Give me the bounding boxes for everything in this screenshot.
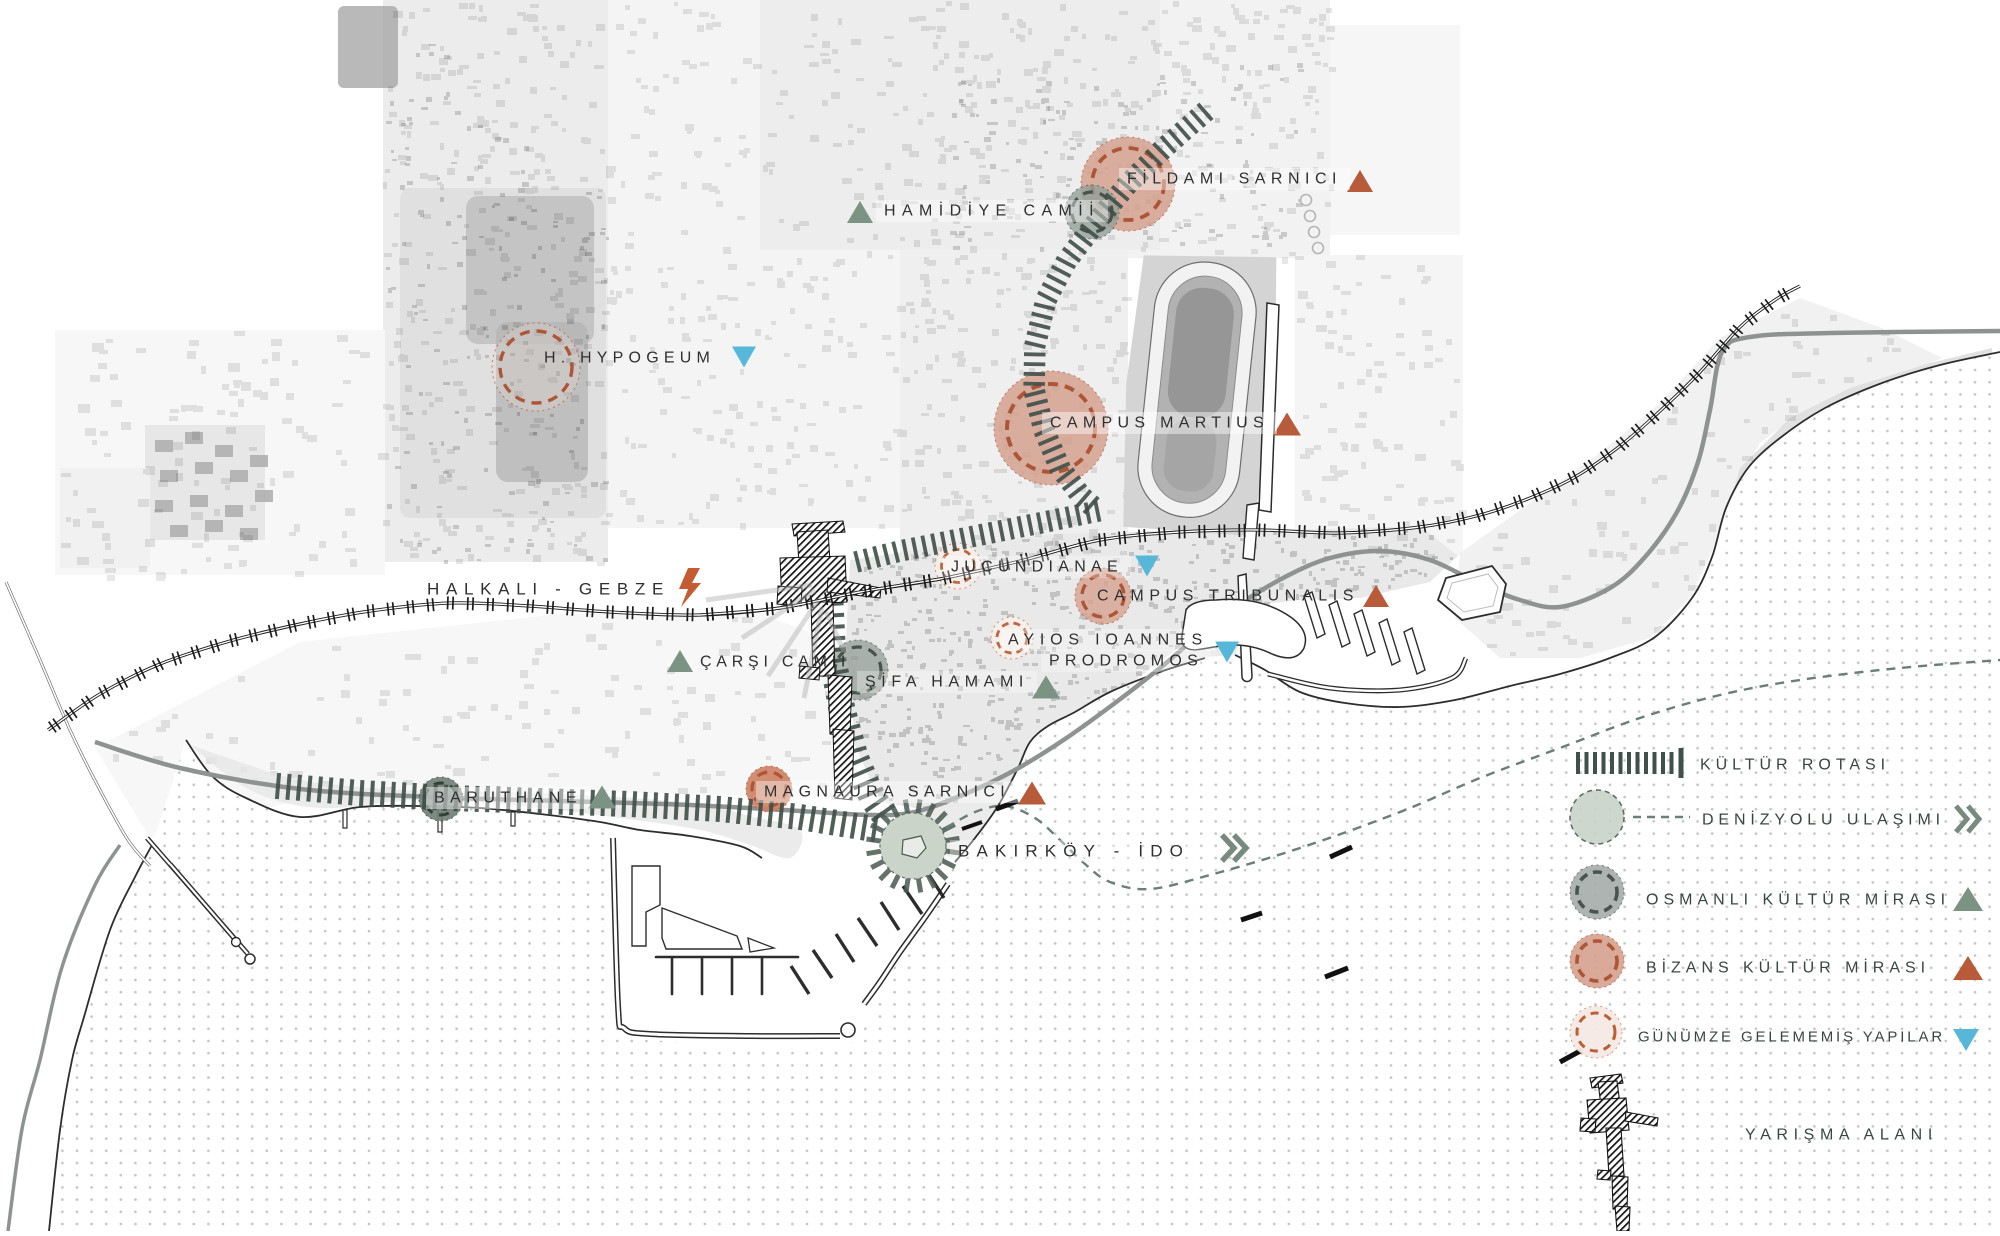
svg-text:JUCUNDIANAE: JUCUNDIANAE <box>951 559 1123 576</box>
svg-text:HAMİDİYE CAMİİ: HAMİDİYE CAMİİ <box>884 201 1100 220</box>
svg-text:OSMANLI KÜLTÜR MİRASI: OSMANLI KÜLTÜR MİRASI <box>1646 890 1950 909</box>
svg-text:GÜNÜMZE GELEMEMİŞ YAPILAR: GÜNÜMZE GELEMEMİŞ YAPILAR <box>1638 1028 1945 1046</box>
svg-text:FİLDAMI SARNICI: FİLDAMI SARNICI <box>1127 169 1342 188</box>
svg-text:BAKIRKÖY - İDO: BAKIRKÖY - İDO <box>958 842 1190 861</box>
svg-text:ŞİFA HAMAMI: ŞİFA HAMAMI <box>865 672 1029 691</box>
svg-text:AYIOS IOANNES: AYIOS IOANNES <box>1008 632 1208 649</box>
svg-text:PRODROMOS: PRODROMOS <box>1049 653 1203 670</box>
svg-text:KÜLTÜR ROTASI: KÜLTÜR ROTASI <box>1700 756 1890 774</box>
svg-text:HALKALI - GEBZE: HALKALI - GEBZE <box>427 580 670 599</box>
svg-text:BARUTHANE: BARUTHANE <box>434 790 582 807</box>
svg-text:ÇARŞI CAMİİ: ÇARŞI CAMİİ <box>700 652 850 671</box>
svg-text:BİZANS KÜLTÜR MİRASI: BİZANS KÜLTÜR MİRASI <box>1646 958 1930 977</box>
svg-text:CAMPUS TRIBUNALIS: CAMPUS TRIBUNALIS <box>1097 588 1359 605</box>
svg-text:MAGNAURA SARNICI: MAGNAURA SARNICI <box>764 784 1010 801</box>
svg-text:DENİZYOLU ULAŞIMI: DENİZYOLU ULAŞIMI <box>1702 810 1945 829</box>
svg-text:H. HYPOGEUM: H. HYPOGEUM <box>544 350 715 367</box>
svg-text:CAMPUS MARTIUS: CAMPUS MARTIUS <box>1050 415 1269 432</box>
svg-text:YARIŞMA ALANI: YARIŞMA ALANI <box>1745 1127 1938 1144</box>
